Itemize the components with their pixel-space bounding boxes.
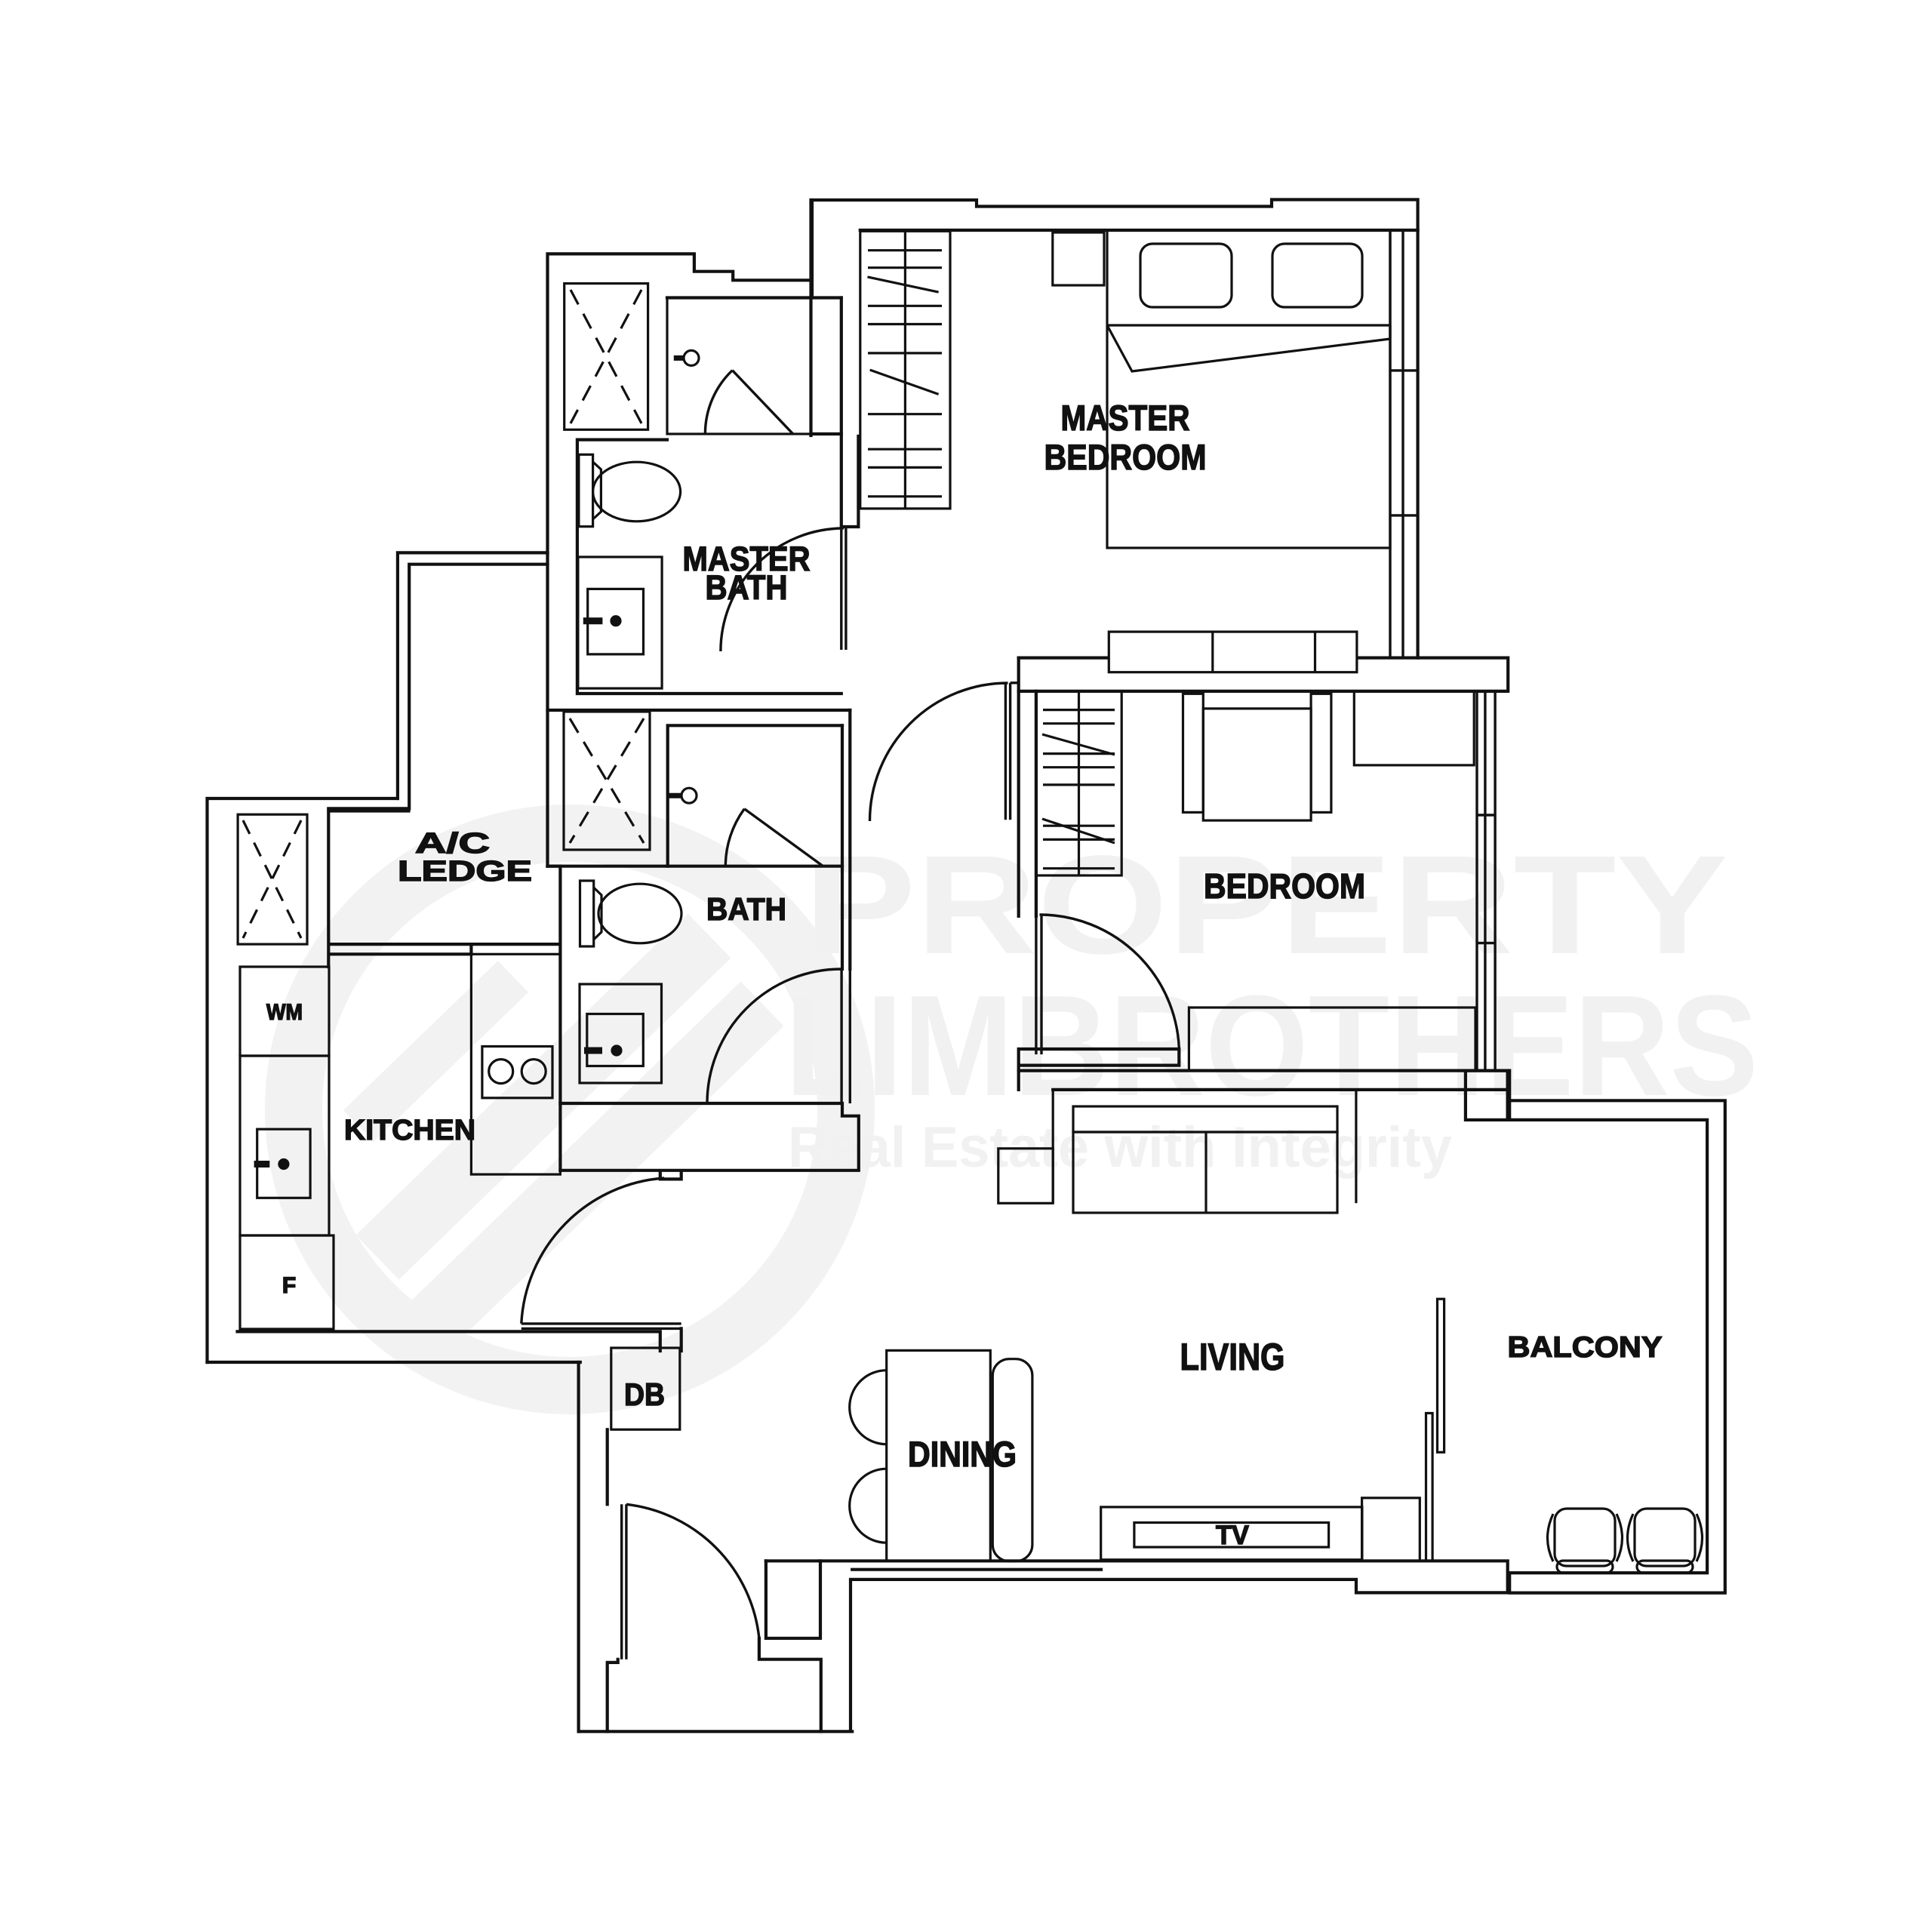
svg-text:DINING: DINING [908, 1434, 1017, 1474]
svg-text:BATH: BATH [706, 568, 788, 607]
svg-text:TV: TV [1216, 1521, 1250, 1550]
svg-text:BATH: BATH [706, 891, 786, 927]
svg-text:DB: DB [624, 1377, 665, 1412]
svg-text:BALCONY: BALCONY [1508, 1331, 1663, 1364]
svg-text:LIVING: LIVING [1180, 1336, 1285, 1378]
svg-text:F: F [282, 1273, 296, 1298]
svg-text:A/C: A/C [415, 828, 490, 860]
svg-text:BEDROOM: BEDROOM [1044, 437, 1207, 477]
svg-text:KITCHEN: KITCHEN [344, 1115, 475, 1146]
svg-text:Real Estate with Integrity: Real Estate with Integrity [788, 1115, 1452, 1180]
svg-text:WM: WM [266, 1000, 303, 1025]
svg-text:LEDGE: LEDGE [398, 856, 532, 888]
svg-text:MASTER: MASTER [1061, 398, 1190, 438]
svg-text:BEDROOM: BEDROOM [1204, 866, 1365, 906]
